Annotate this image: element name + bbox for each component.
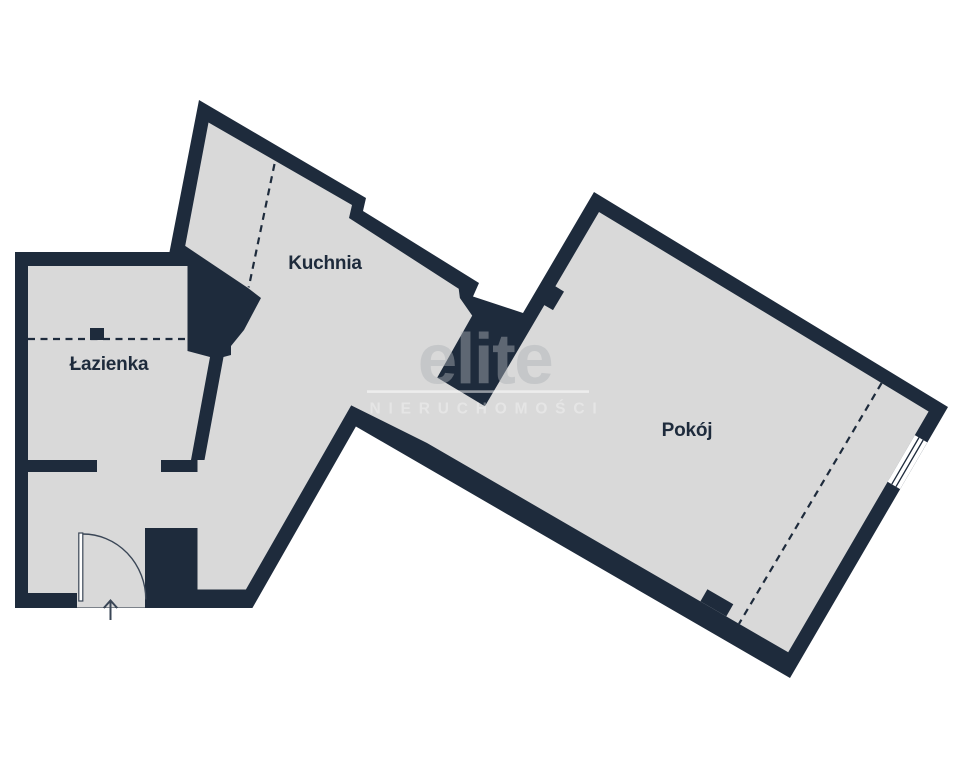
svg-text:elite: elite [418, 321, 553, 400]
svg-text:Pokój: Pokój [662, 420, 713, 441]
svg-text:Łazienka: Łazienka [70, 354, 149, 375]
svg-text:Kuchnia: Kuchnia [288, 253, 362, 274]
svg-text:NIERUCHOMOŚCI: NIERUCHOMOŚCI [370, 399, 605, 417]
